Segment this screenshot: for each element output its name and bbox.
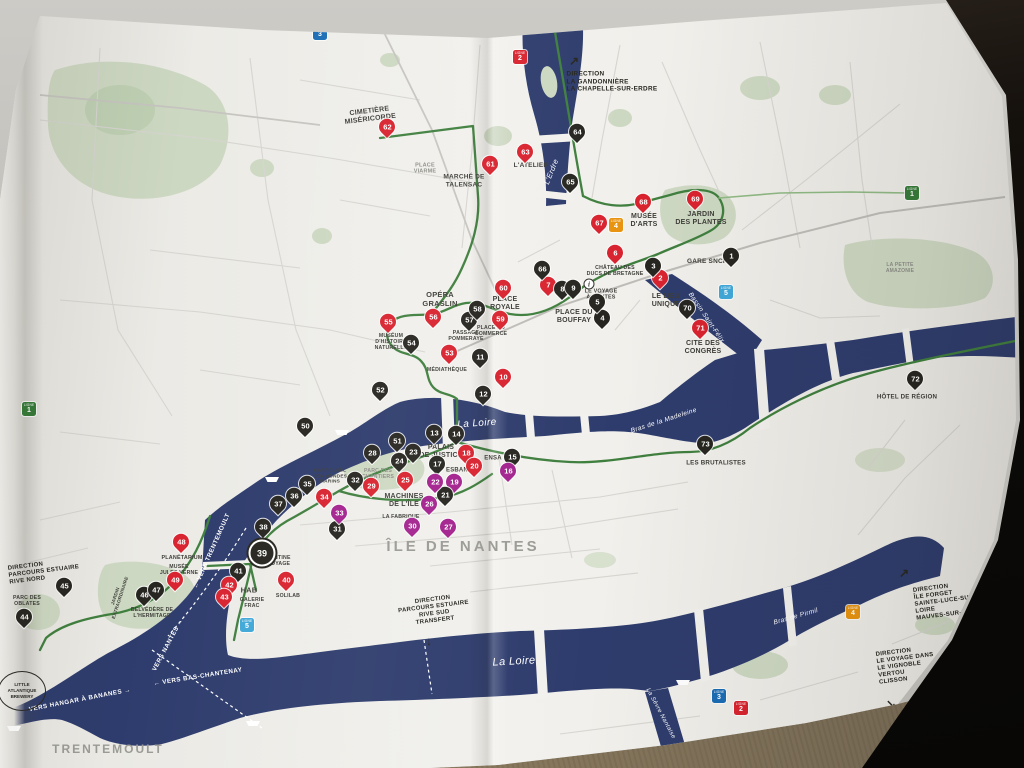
marker-number: 36 [290,491,298,500]
marker-number: 50 [301,421,309,430]
map-label: La Loire [492,654,536,669]
marker-number: 47 [152,585,160,594]
transit-line-badge: LIGNE2 [513,50,527,64]
badge-line-number: 5 [245,623,249,630]
transit-line-badge: LIGNE2 [734,701,748,715]
marker-number: 51 [393,436,401,445]
map-marker-73: 73 [694,432,717,455]
map-label: LA PETITE AMAZONIE [886,263,914,275]
marker-number: 33 [335,508,343,517]
marker-number: 6 [613,248,617,257]
badge-line-number: 5 [724,290,728,297]
map-marker-13: 13 [423,421,446,444]
map-label: Bassin Saint-Félix [686,291,725,344]
marker-number: 25 [401,475,409,484]
transit-line-badge: LIGNE5 [240,618,254,632]
marker-number: 57 [465,315,473,324]
badge-line-number: 4 [614,223,618,230]
map-label: DIRECTION LA GANDONNIÈRE LA CHAPELLE-SUR… [567,71,658,94]
badge-line-number: 2 [739,706,743,713]
map-label: PASSAGE POMMERAYE [448,330,483,342]
photo-of-nantes-map: CIMETIÈRE MISÉRICORDEPLACE VIARMEMARCHÉ … [0,0,1024,768]
badge-line-number: 2 [518,55,522,62]
marker-number: 54 [407,338,415,347]
map-label: LE LIEU UNIQUE [652,293,680,310]
marker-number: 11 [476,352,484,361]
marker-number: 56 [429,312,437,321]
marker-number: 35 [303,479,311,488]
map-label: ← VERS BAS-CHANTENAY [153,666,243,687]
map-label: MÉDIATHÈQUE [427,367,467,373]
map-label: ÎLE DE NANTES [386,538,539,556]
marker-number: 10 [499,372,507,381]
map-marker-72: 72 [904,367,927,390]
map-label: LES BRUTALISTES [686,459,746,466]
marker-number: 73 [701,439,709,448]
map-label: JARDIN EXTRAORDINAIRE [106,574,130,619]
map-marker-10: 10 [492,365,515,388]
badge-line-number: 1 [27,407,31,414]
transit-line-badge: LIGNE5 [719,285,733,299]
map-label: JARDIN DES PLANTES [675,211,726,228]
marker-number: 37 [274,499,282,508]
map-page: CIMETIÈRE MISÉRICORDEPLACE VIARMEMARCHÉ … [0,0,1024,768]
marker-number: 71 [696,323,704,332]
badge-line-number: 4 [851,610,855,617]
marker-number: 13 [430,428,438,437]
marker-number: 17 [433,459,441,468]
map-marker-64: 64 [566,120,589,143]
map-marker-63: 63 [514,140,537,163]
marker-number: 19 [450,477,458,486]
ferry-icon [335,430,349,435]
marker-number: 9 [571,283,575,292]
map-label: PLACE VIARME [414,163,437,176]
map-label: MARCHÉ DE TALENSAC [443,173,484,188]
marker-number: 62 [383,122,391,131]
map-label: Bras de Pirmil [773,607,819,627]
badge-line-number: 1 [910,191,914,198]
marker-number: 49 [171,575,179,584]
marker-number: 12 [479,389,487,398]
map-marker-50: 50 [294,414,317,437]
marker-number: 22 [431,477,439,486]
map-label: CARROUSEL DES MONDES MARINS [313,469,347,486]
marker-number: 63 [521,147,529,156]
transit-line-badge: LIGNE1 [22,402,36,416]
map-marker-34: 34 [313,485,336,508]
map-label: DIRECTION PARCOURS ESTUAIRE RIVE SUD TRA… [397,593,471,630]
ferry-icon [246,721,260,726]
map-label: BELVÉDÈRE DE L'HERMITAGE [131,607,173,619]
map-label: PARC DES OBLATES [13,595,41,607]
marker-number: 38 [259,522,267,531]
marker-number: 69 [691,194,699,203]
map-marker-27: 27 [437,515,460,538]
marker-number: 1 [729,251,733,260]
map-marker-12: 12 [472,382,495,405]
marker-number: 55 [384,317,392,326]
overlay-layer: CIMETIÈRE MISÉRICORDEPLACE VIARMEMARCHÉ … [0,0,1024,768]
marker-number: 30 [408,521,416,530]
map-marker-39: 39 [249,540,276,567]
map-label: GARE SNCF [687,258,727,266]
map-marker-55: 55 [377,310,400,333]
map-marker-33: 33 [328,501,351,524]
marker-number: 15 [508,452,516,461]
marker-number: 53 [445,348,453,357]
marker-number: 5 [595,297,599,306]
map-label: VERS NANTES → [151,617,185,672]
map-label: OPÉRA GRASLIN [422,291,457,309]
marker-number: 8 [560,284,564,293]
marker-number: 23 [409,447,417,456]
transit-line-badge: LIGNE1 [905,186,919,200]
map-label: L'ATELIER [514,162,549,170]
map-marker-61: 61 [479,152,502,175]
marker-number: 21 [441,490,449,499]
badge-line-number: 3 [717,694,721,701]
marker-number: 20 [470,461,478,470]
map-marker-40: 40 [275,568,298,591]
map-marker-48: 48 [170,530,193,553]
direction-arrow: ↗ [569,54,579,68]
marker-number: 40 [282,575,290,584]
map-label: PLANÉTARIUM [161,555,202,561]
marker-number: 34 [320,492,328,501]
marker-number: 70 [683,303,691,312]
marker-number: 24 [395,456,403,465]
map-marker-6: 6 [604,241,627,264]
map-label: HÔTEL DE RÉGION [877,393,937,400]
marker-number: 28 [368,448,376,457]
info-icon: i [584,279,595,290]
marker-number: 52 [376,385,384,394]
transit-line-badge: LIGNE4 [846,605,860,619]
map-marker-69: 69 [684,187,707,210]
marker-number: 67 [595,218,603,227]
marker-number: 66 [538,264,546,273]
marker-number: 39 [257,548,267,558]
map-label: SOLILAB [276,593,300,599]
map-label: MUSÉE D'ARTS [631,213,658,230]
direction-arrow: ↗ [899,566,909,580]
marker-number: 44 [20,612,28,621]
marker-number: 45 [60,581,68,590]
ferry-icon [7,726,21,731]
map-label: MACHINES DE L'ÎLE [385,493,424,510]
marker-number: 7 [546,280,550,289]
marker-number: 27 [444,522,452,531]
ferry-icon [265,477,279,482]
marker-number: 48 [177,537,185,546]
marker-number: 72 [911,374,919,383]
marker-number: 61 [486,159,494,168]
map-marker-38: 38 [252,515,275,538]
marker-number: 26 [425,499,433,508]
ferry-icon [676,680,690,685]
map-marker-25: 25 [394,468,417,491]
marker-number: 43 [220,592,228,601]
marker-number: 3 [651,261,655,270]
brewery-oval-label: LITTLE ATLANTIQUE BREWERY [0,671,46,711]
marker-number: 31 [333,524,341,533]
map-label: ENSA [484,455,501,462]
marker-number: 16 [504,466,512,475]
transit-line-badge: LIGNE3 [712,689,726,703]
marker-number: 68 [639,197,647,206]
badge-line-number: 3 [318,31,322,38]
map-marker-65: 65 [559,170,582,193]
map-label: CHÂTEAU DES DUCS DE BRETAGNE [587,265,644,277]
marker-number: 2 [658,273,662,282]
marker-number: 29 [367,481,375,490]
marker-number: 64 [573,127,581,136]
map-label: PLACE ROYALE [490,296,520,313]
map-label: HAB [241,587,258,596]
marker-number: 18 [462,448,470,457]
map-marker-11: 11 [469,345,492,368]
marker-number: 32 [351,475,359,484]
map-marker-68: 68 [632,190,655,213]
transit-line-badge: LIGNE4 [609,218,623,232]
marker-number: 4 [600,313,604,322]
marker-number: 65 [566,177,574,186]
map-label: GALERIE FRAC [240,597,264,609]
map-marker-44: 44 [13,605,36,628]
marker-number: 14 [452,429,460,438]
map-marker-52: 52 [369,378,392,401]
marker-number: 58 [473,304,481,313]
map-marker-28: 28 [361,441,384,464]
map-label: TRENTEMOULT [52,742,164,756]
marker-number: 41 [234,566,242,575]
map-label: PLACE DU BOUFFAY [555,309,592,326]
map-marker-53: 53 [438,341,461,364]
marker-number: 60 [499,283,507,292]
map-label: La Sèvre Nantaise [644,688,677,741]
map-label: Bras de la Madeleine [630,407,698,436]
map-label: CITÉ DES CONGRÈS [685,340,722,357]
marker-number: 59 [496,314,504,323]
map-marker-67: 67 [588,211,611,234]
direction-arrow: ↓ [426,634,432,648]
